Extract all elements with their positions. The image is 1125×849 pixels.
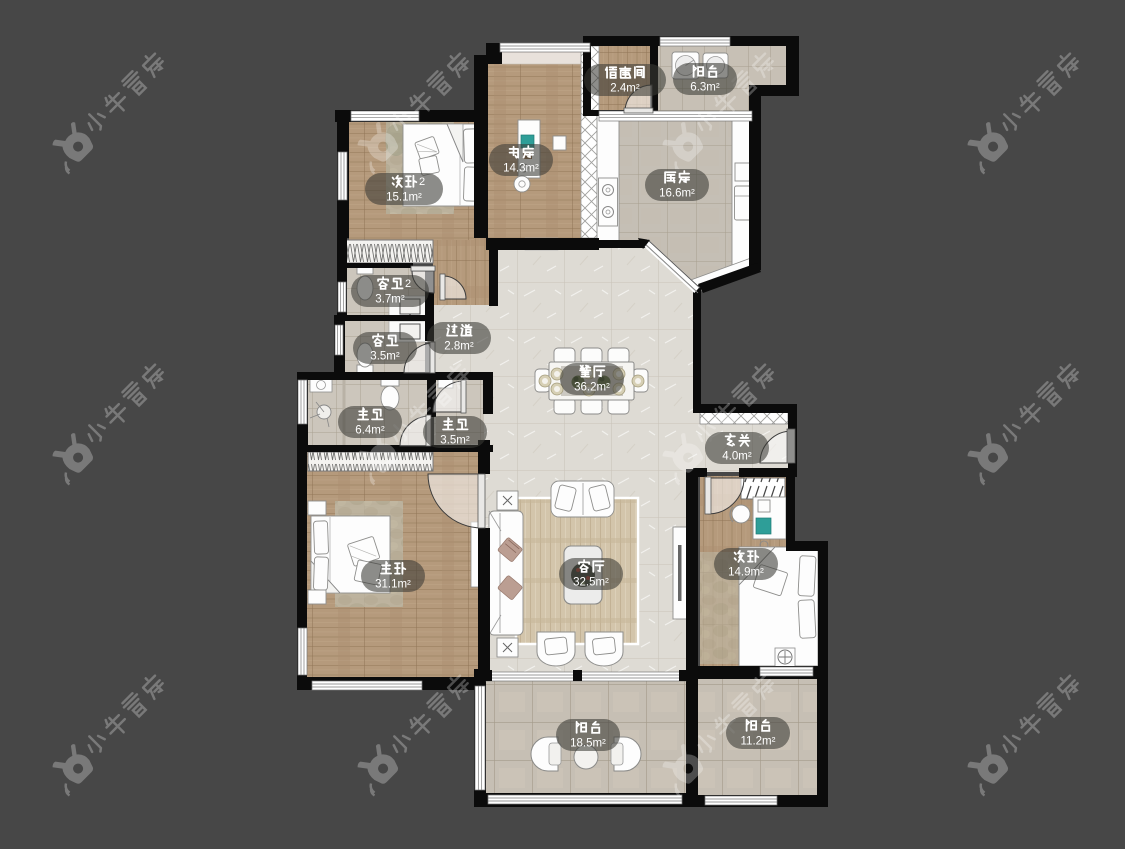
svg-text:14.9m²: 14.9m² [728, 567, 764, 579]
svg-text:11.2m²: 11.2m² [741, 736, 776, 748]
svg-text:16.6m²: 16.6m² [659, 188, 695, 200]
svg-text:31.1m²: 31.1m² [375, 579, 411, 591]
svg-text:32.5m²: 32.5m² [573, 577, 609, 589]
svg-text:14.3m²: 14.3m² [503, 163, 539, 175]
svg-text:2: 2 [419, 176, 425, 188]
svg-text:3.5m²: 3.5m² [370, 351, 400, 363]
svg-text:4.0m²: 4.0m² [722, 451, 752, 463]
svg-text:3.5m²: 3.5m² [440, 435, 470, 447]
svg-text:18.5m²: 18.5m² [570, 738, 606, 750]
svg-text:6.3m²: 6.3m² [690, 82, 720, 94]
svg-text:15.1m²: 15.1m² [386, 192, 422, 204]
svg-text:2.8m²: 2.8m² [444, 341, 474, 353]
svg-text:6.4m²: 6.4m² [355, 425, 385, 437]
svg-text:3.7m²: 3.7m² [375, 294, 405, 306]
svg-text:2.4m²: 2.4m² [610, 83, 640, 95]
svg-text:36.2m²: 36.2m² [574, 382, 610, 394]
svg-text:2: 2 [405, 278, 411, 290]
